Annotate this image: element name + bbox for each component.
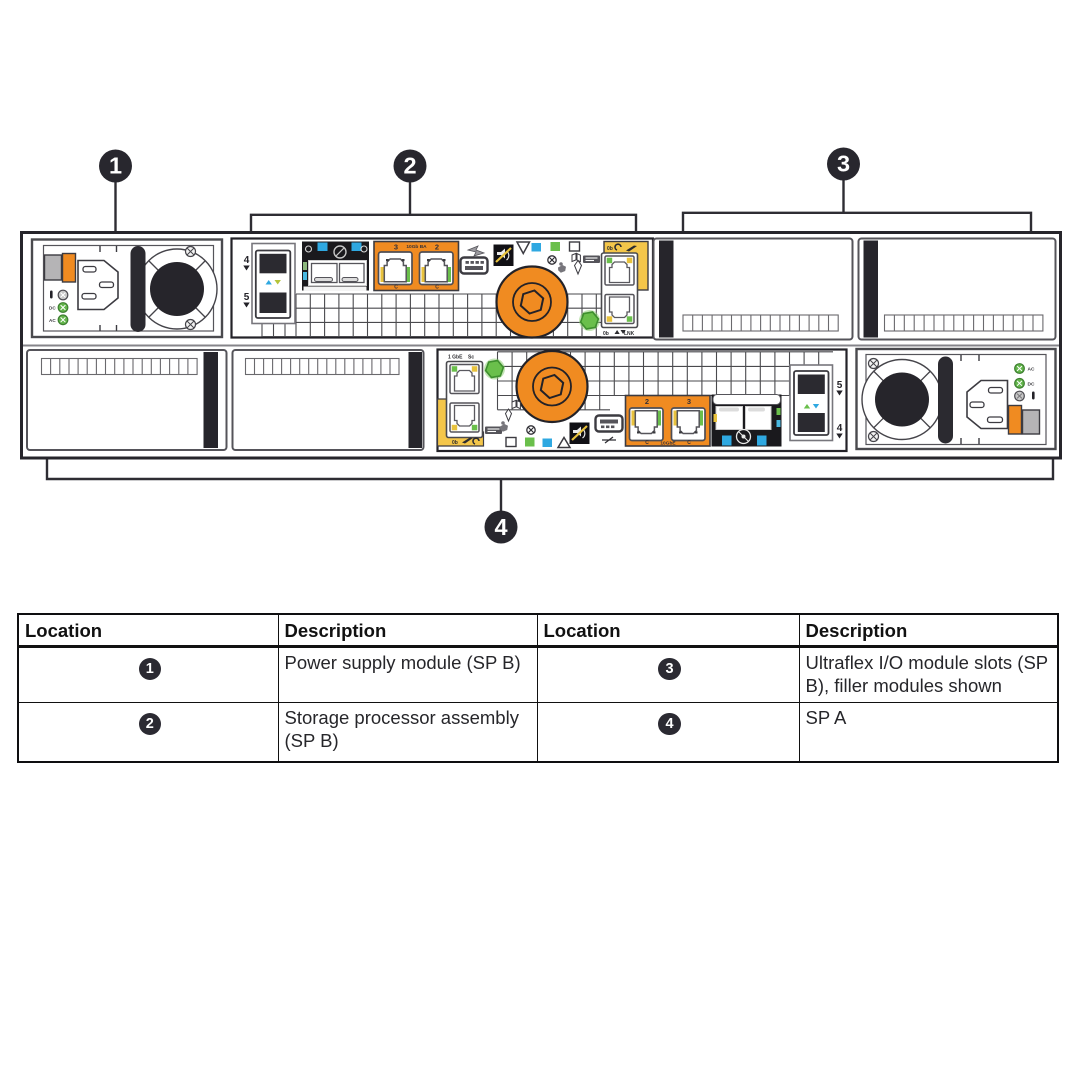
svg-text:3: 3: [837, 151, 850, 177]
svg-text:5: 5: [244, 292, 250, 303]
svg-text:0b: 0b: [607, 246, 613, 252]
svg-text:5: 5: [837, 380, 843, 391]
svg-text:C: C: [687, 440, 691, 446]
svg-text:3: 3: [394, 243, 398, 252]
svg-text:10Gb BA: 10Gb BA: [406, 244, 427, 250]
svg-text:LNK: LNK: [624, 331, 635, 337]
svg-text:DC: DC: [1028, 381, 1035, 387]
svg-text:C: C: [645, 440, 649, 446]
svg-text:Sc: Sc: [468, 355, 474, 361]
svg-text:0b: 0b: [452, 440, 458, 446]
svg-text:10GbE: 10GbE: [660, 441, 676, 447]
svg-text:1: 1: [109, 153, 122, 179]
svg-text:4: 4: [244, 255, 250, 266]
svg-text:1 GbE: 1 GbE: [448, 355, 463, 361]
svg-text:AC: AC: [1028, 367, 1035, 373]
svg-text:4: 4: [494, 514, 507, 540]
svg-text:2: 2: [403, 153, 416, 179]
svg-text:AC: AC: [49, 318, 56, 323]
svg-text:2: 2: [645, 397, 649, 406]
svg-text:C: C: [394, 285, 398, 291]
svg-text:3: 3: [687, 397, 691, 406]
svg-text:C: C: [435, 285, 439, 291]
svg-text:0b: 0b: [603, 331, 609, 337]
svg-text:2: 2: [435, 243, 439, 252]
svg-text:DC: DC: [49, 306, 56, 311]
svg-text:4: 4: [837, 423, 843, 434]
